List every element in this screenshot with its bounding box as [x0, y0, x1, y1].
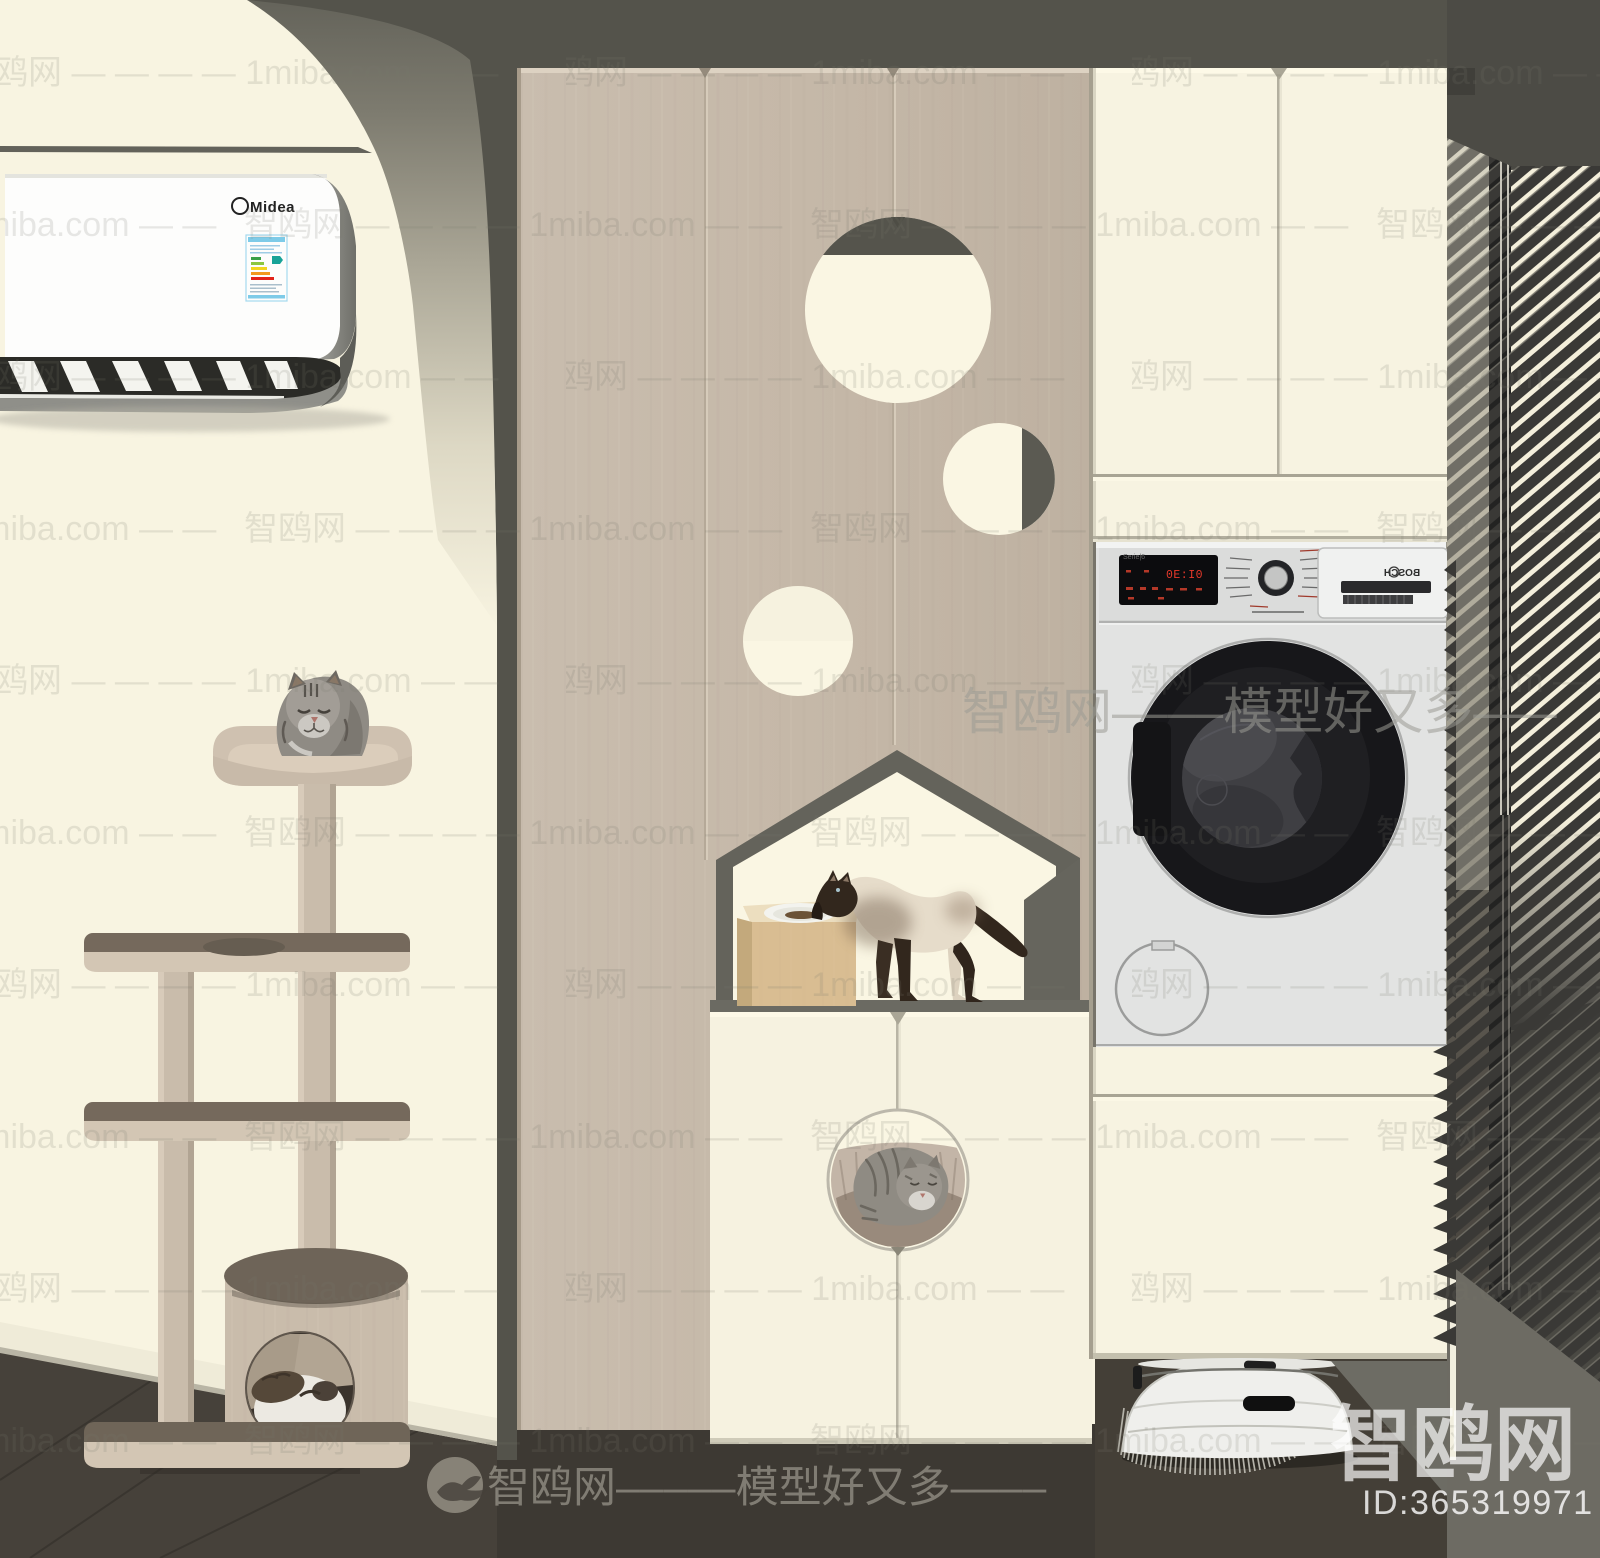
svg-text:智鸥网: 智鸥网: [1330, 1400, 1576, 1491]
svg-text:ID:365319971: ID:365319971: [1362, 1484, 1594, 1522]
svg-text:智鸥网––––模型好又多–––: 智鸥网––––模型好又多–––: [962, 684, 1557, 740]
svg-text:智鸥网–––––模型好又多––––: 智鸥网–––––模型好又多––––: [487, 1464, 1046, 1512]
